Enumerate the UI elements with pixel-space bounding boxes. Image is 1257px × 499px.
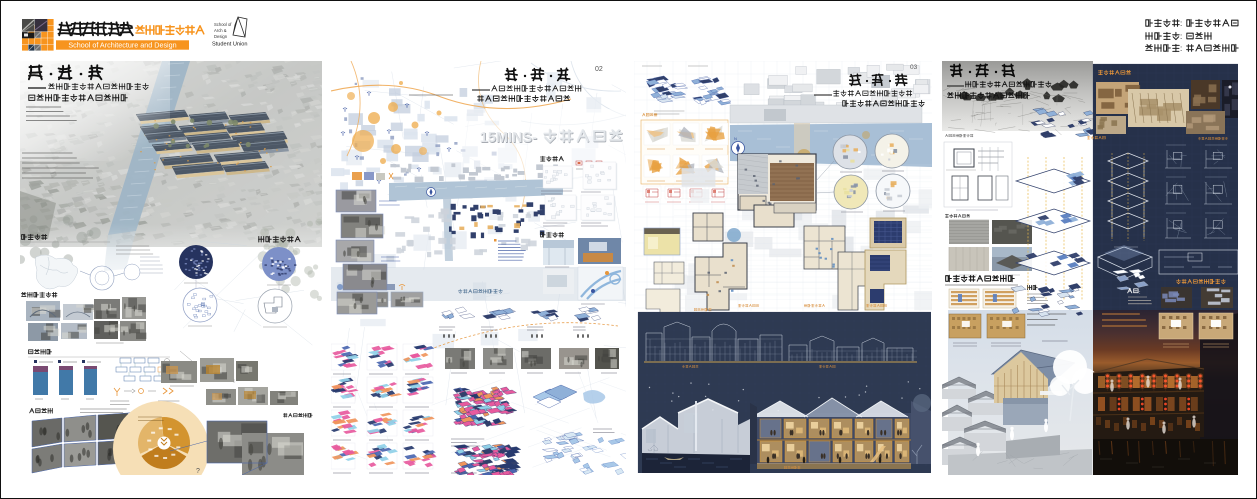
svg-text::: : bbox=[1180, 32, 1182, 41]
svg-text:Arch &: Arch & bbox=[214, 28, 227, 33]
svg-text::: : bbox=[1180, 19, 1182, 28]
svg-text:Student Union: Student Union bbox=[212, 42, 247, 48]
svg-text::: : bbox=[1180, 44, 1182, 53]
svg-text:School of: School of bbox=[214, 22, 232, 27]
svg-text:School of Architecture and Des: School of Architecture and Design bbox=[68, 41, 176, 50]
svg-text:03: 03 bbox=[910, 64, 918, 71]
svg-text:15MINS-: 15MINS- bbox=[480, 130, 537, 146]
svg-text:02: 02 bbox=[595, 66, 603, 73]
svg-text:N: N bbox=[734, 136, 737, 141]
svg-text:Design: Design bbox=[214, 34, 228, 39]
svg-text:?: ? bbox=[196, 468, 200, 475]
